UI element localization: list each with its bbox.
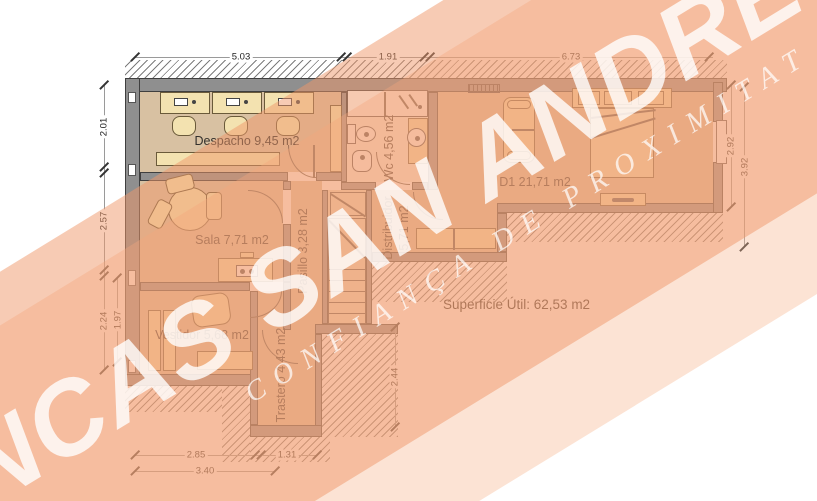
radiator — [468, 84, 500, 93]
hatch-below-d1 — [507, 213, 723, 242]
sink-basin — [407, 128, 426, 147]
bathtub — [347, 90, 428, 117]
wall-stairs-bottom — [315, 324, 398, 334]
wall-vestidor-bottom — [125, 374, 258, 386]
dim-middle-1: 2.44 — [390, 366, 401, 389]
monitor-icon — [226, 98, 240, 106]
d1-bench — [600, 193, 646, 206]
dim-right-1: 2.92 — [726, 135, 737, 158]
bed-pillow-2 — [604, 91, 632, 105]
stairs-cut-diagonal — [328, 219, 366, 258]
monitor-icon — [278, 98, 292, 106]
desk-3 — [264, 92, 314, 114]
dim-bottom-3: 3.40 — [194, 466, 217, 477]
wall-right-top — [713, 82, 723, 122]
label-sala: Sala 7,71 m2 — [195, 233, 269, 247]
wall-pasillo-left-lower — [283, 282, 291, 330]
label-pasillo: Pasillo 3,28 m2 — [296, 208, 310, 293]
hatch-top-band — [125, 60, 727, 78]
dim-bottom-1: 2.85 — [185, 450, 208, 461]
label-distribuidor-area: 5,71 m2 — [397, 205, 411, 250]
bed-fold-line — [591, 109, 656, 118]
label-trastero: Trastero 4,43 m2 — [274, 328, 288, 423]
office-chair-3 — [276, 116, 300, 136]
shower-head-icon — [418, 105, 422, 109]
dim-bottom-2: 1.31 — [276, 450, 299, 461]
hatch-below-distribuidor — [372, 262, 507, 302]
door-arc-despacho — [288, 145, 316, 178]
floorplan-canvas: Despacho 9,45 m2 Sala 7,71 m2 Vestidor 5… — [0, 0, 817, 501]
vestidor-bench — [197, 351, 253, 370]
bed-fold-line — [591, 117, 656, 138]
window-left-2 — [128, 164, 136, 176]
wall-sala-vestidor — [140, 282, 250, 291]
sala-sideboard — [218, 258, 273, 282]
room-d1-floor — [438, 92, 713, 203]
wall-trastero-bottom — [250, 425, 322, 437]
shower-spray-icon — [409, 94, 418, 106]
mouse-icon — [296, 100, 300, 104]
label-wc: Wc 4,56 m2 — [382, 115, 396, 182]
sala-chair-right — [206, 192, 222, 220]
appliance-icon — [236, 265, 258, 277]
distribuidor-bench — [416, 228, 496, 249]
hatch-right-of-trastero — [322, 334, 398, 437]
bed-pillow-1 — [578, 91, 600, 105]
desk-2 — [212, 92, 262, 114]
bed-pillow-3 — [638, 91, 664, 105]
toilet-bowl — [356, 126, 376, 142]
mouse-icon — [192, 100, 196, 104]
bed-mattress — [590, 108, 654, 178]
dim-top-3: 6.73 — [560, 52, 583, 63]
stairs-upper-diagonal — [330, 193, 366, 217]
office-chair-1 — [172, 116, 196, 136]
desk-1 — [160, 92, 210, 114]
wall-sala-pasillo-top — [283, 181, 291, 190]
wall-sala-pasillo — [283, 224, 291, 282]
office-chair-2 — [224, 116, 248, 136]
window-left-3 — [128, 270, 136, 286]
wall-despacho-sala-a — [140, 172, 288, 181]
shower-spray-icon — [399, 95, 409, 109]
stairs-treads — [329, 259, 365, 323]
window-left-4 — [128, 360, 136, 373]
label-despacho: Despacho 9,45 m2 — [195, 134, 300, 148]
bidet — [352, 150, 372, 172]
dim-left-1: 2.01 — [99, 116, 110, 139]
vestidor-armchair — [190, 292, 232, 329]
label-vestidor: Vestidor 5,68 m2 — [155, 328, 249, 342]
wall-d1-left — [428, 92, 438, 190]
dim-top-2: 1.91 — [377, 52, 400, 63]
sofa — [503, 97, 535, 163]
mouse-icon — [244, 100, 248, 104]
wall-wc-bottom-b — [412, 182, 428, 190]
dim-left-4: 1.97 — [113, 309, 124, 332]
stairs-main — [328, 218, 366, 324]
hall-cabinet — [330, 105, 342, 172]
dim-left-2: 2.57 — [99, 210, 110, 233]
dim-right-2: 3.92 — [740, 156, 751, 179]
summary-text: Superficie Útil: 62,53 m2 — [443, 297, 590, 312]
window-left-1 — [128, 92, 136, 103]
sala-sideboard-tab — [240, 252, 254, 258]
label-d1: D1 21,71 m2 — [499, 175, 571, 189]
toilet-tank — [347, 124, 356, 144]
dim-top-1: 5.03 — [230, 52, 253, 63]
monitor-icon — [174, 98, 188, 106]
label-distribuidor-name: Distribuidor — [381, 196, 395, 259]
hatch-left-of-trastero — [222, 386, 250, 462]
wall-d1-step — [497, 213, 507, 252]
wall-wc-bottom-a — [341, 182, 376, 190]
door-leaf-despacho — [314, 145, 316, 178]
stairs-upper-flight — [330, 192, 366, 216]
despacho-sideboard — [156, 152, 280, 166]
wall-right-bottom — [713, 162, 723, 213]
wall-left — [125, 78, 140, 384]
wall-trastero-right — [315, 334, 322, 437]
dim-left-3: 2.24 — [99, 310, 110, 333]
